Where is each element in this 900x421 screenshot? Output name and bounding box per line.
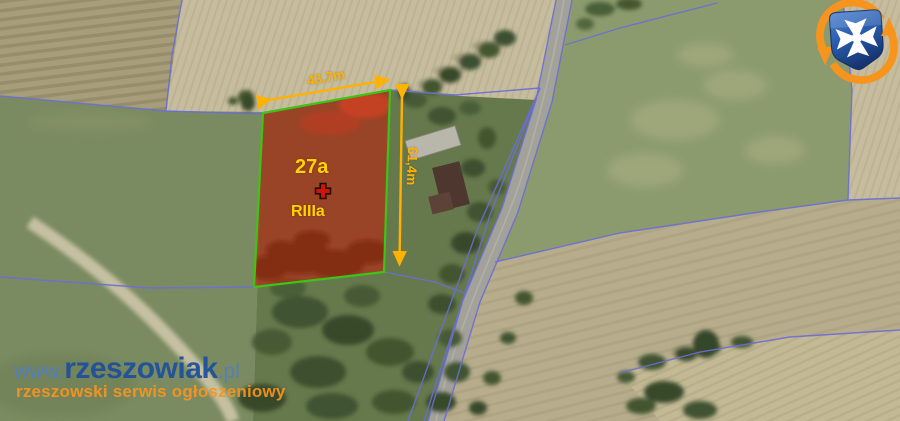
watermark-url-tld: .pl xyxy=(218,360,240,384)
site-logo xyxy=(814,0,900,86)
aerial-listing-image: 43.7m 61,4m 27a RIIIa www.rzeszowiak.pl … xyxy=(0,0,900,421)
logo-shield-icon xyxy=(829,9,885,71)
watermark-site-name: rzeszowiak xyxy=(64,352,217,386)
watermark: www.rzeszowiak.pl rzeszowski serwis ogło… xyxy=(14,352,286,402)
watermark-url: www.rzeszowiak.pl xyxy=(14,352,286,386)
watermark-tagline: rzeszowski serwis ogłoszeniowy xyxy=(16,382,286,402)
soil-class-label: RIIIa xyxy=(291,204,325,220)
watermark-url-prefix: www. xyxy=(14,360,64,384)
height-dimension-label: 61,4m xyxy=(404,147,419,186)
plot-area-label: 27a xyxy=(295,157,328,177)
